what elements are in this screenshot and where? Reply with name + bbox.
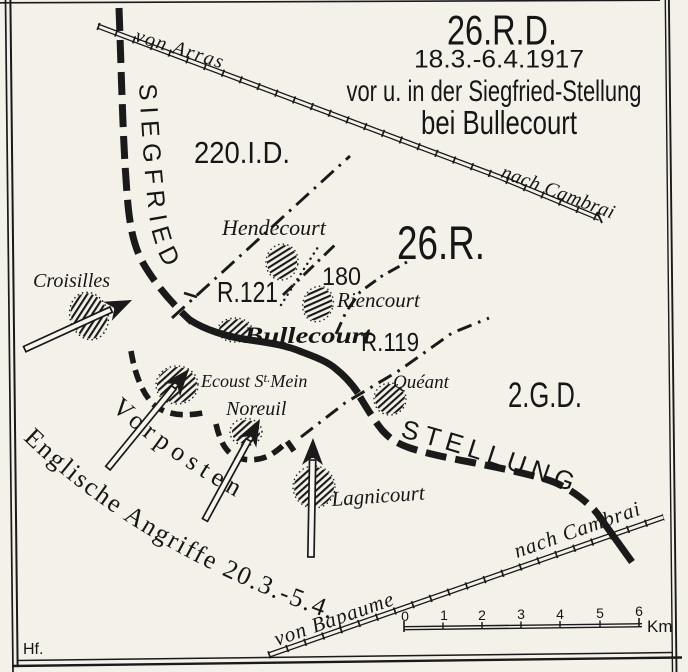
svg-text:4: 4 [556,606,564,622]
svg-text:Hendecourt: Hendecourt [221,215,327,240]
svg-text:Hf.: Hf. [23,641,43,658]
svg-text:3: 3 [517,606,525,622]
svg-text:2.G.D.: 2.G.D. [508,376,582,415]
svg-text:26.R.: 26.R. [397,216,485,269]
svg-text:180: 180 [322,263,361,291]
svg-text:18.3.-6.4.1917: 18.3.-6.4.1917 [414,46,584,74]
svg-text:Km: Km [647,617,673,636]
svg-text:Quéant: Quéant [393,372,450,393]
svg-text:2: 2 [478,607,486,623]
svg-text:1: 1 [440,607,448,623]
svg-text:Riencourt: Riencourt [336,288,421,312]
svg-text:5: 5 [596,605,604,621]
svg-text:Croisilles: Croisilles [33,270,110,292]
svg-text:bei Bullecourt: bei Bullecourt [421,104,577,141]
svg-text:Noreuil: Noreuil [225,398,287,420]
svg-text:0: 0 [401,608,409,624]
svg-text:R.121: R.121 [217,277,278,309]
svg-text:220.I.D.: 220.I.D. [194,135,290,170]
svg-text:6: 6 [635,603,643,619]
svg-text:Ecoust St.Mein: Ecoust St.Mein [200,370,307,391]
